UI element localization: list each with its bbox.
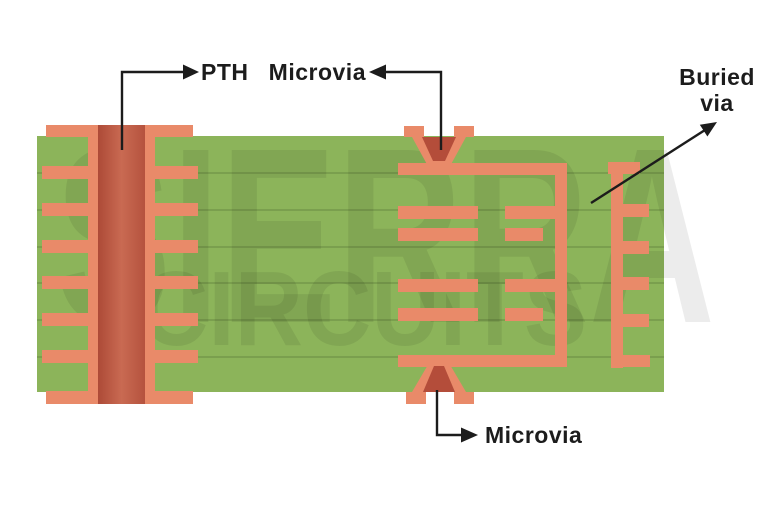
pth-land bbox=[42, 166, 88, 179]
inner-stub bbox=[623, 277, 649, 290]
pth-land bbox=[155, 203, 198, 216]
microvia-top-pad bbox=[454, 126, 474, 137]
pth-arrow-icon bbox=[183, 65, 199, 80]
buried-via-label-line2: via bbox=[700, 90, 733, 116]
inner-trace bbox=[398, 308, 478, 321]
microvia-bottom-label: Microvia bbox=[485, 422, 582, 448]
inner-trace bbox=[505, 228, 543, 241]
microvia-bottom-pad bbox=[454, 392, 474, 404]
inner-trace bbox=[398, 279, 478, 292]
inner-stub bbox=[623, 204, 649, 217]
pth-land bbox=[42, 276, 88, 289]
inner-trace bbox=[398, 206, 478, 219]
inner-trace-l2 bbox=[398, 163, 567, 175]
pth-land bbox=[42, 203, 88, 216]
inner-trace bbox=[505, 206, 567, 219]
microvia-top-pad bbox=[404, 126, 424, 137]
pth-land bbox=[155, 240, 198, 253]
pth-land bbox=[42, 240, 88, 253]
pth-land bbox=[155, 276, 198, 289]
buried-via-label-line1: Buried bbox=[679, 64, 755, 90]
pth-land bbox=[42, 350, 88, 363]
pth-land bbox=[155, 350, 198, 363]
inner-trace bbox=[608, 162, 640, 174]
inner-trace bbox=[611, 355, 650, 367]
pth-land bbox=[155, 313, 198, 326]
inner-stub bbox=[623, 241, 649, 254]
pth-land bbox=[42, 313, 88, 326]
microvia-top-arrow-icon bbox=[369, 65, 386, 80]
pth-barrel-hole bbox=[98, 125, 145, 404]
inner-trace bbox=[398, 228, 478, 241]
pth-land bbox=[155, 166, 198, 179]
microvia-bottom-arrow-icon bbox=[461, 428, 478, 443]
buried-via-barrel bbox=[555, 163, 567, 367]
buried-via-barrel-2 bbox=[611, 162, 623, 368]
inner-trace-l6 bbox=[398, 355, 567, 367]
pth-label: PTH bbox=[201, 59, 249, 85]
pcb-via-diagram: SIERRA CIRCUITS bbox=[0, 0, 768, 512]
inner-trace bbox=[505, 279, 567, 292]
inner-stub bbox=[623, 314, 649, 327]
inner-trace bbox=[505, 308, 543, 321]
diagram-canvas: SIERRA CIRCUITS bbox=[0, 0, 768, 512]
microvia-top-label: Microvia bbox=[269, 59, 366, 85]
microvia-bottom-pad bbox=[406, 392, 426, 404]
